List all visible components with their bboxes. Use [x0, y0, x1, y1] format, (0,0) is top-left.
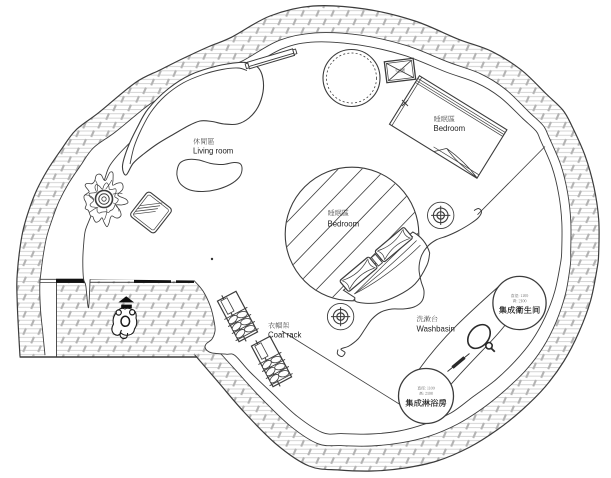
svg-text:Washbasin: Washbasin [417, 325, 455, 334]
svg-text:Living room: Living room [193, 147, 233, 156]
svg-text:Bedroom: Bedroom [328, 220, 360, 229]
svg-text:Coat rack: Coat rack [268, 331, 301, 340]
svg-text:Bedroom: Bedroom [434, 124, 466, 133]
